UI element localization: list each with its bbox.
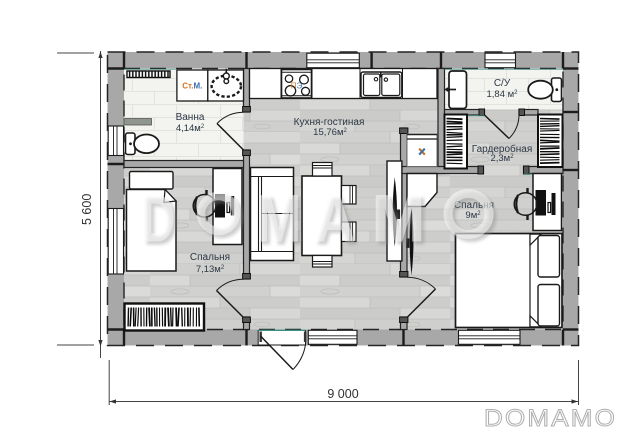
svg-text:D: D: [141, 181, 175, 255]
svg-text:M: M: [372, 181, 425, 255]
svg-text:С/У: С/У: [494, 78, 511, 89]
svg-text:4,14м2: 4,14м2: [176, 123, 205, 134]
svg-text:Ст.М.: Ст.М.: [182, 82, 202, 91]
svg-text:ПЭ: ПЭ: [291, 82, 303, 91]
svg-text:15,76м2: 15,76м2: [313, 127, 347, 138]
svg-text:5 600: 5 600: [80, 194, 94, 225]
svg-text:Спальня: Спальня: [190, 252, 230, 263]
svg-text:1,84 м2: 1,84 м2: [486, 89, 518, 100]
svg-text:9 000: 9 000: [327, 387, 358, 401]
svg-text:7,13м2: 7,13м2: [196, 264, 225, 275]
svg-text:A: A: [314, 181, 355, 255]
svg-text:DOMAMO: DOMAMO: [484, 405, 617, 432]
svg-text:Ванна: Ванна: [176, 112, 205, 123]
svg-text:M: M: [256, 181, 301, 255]
